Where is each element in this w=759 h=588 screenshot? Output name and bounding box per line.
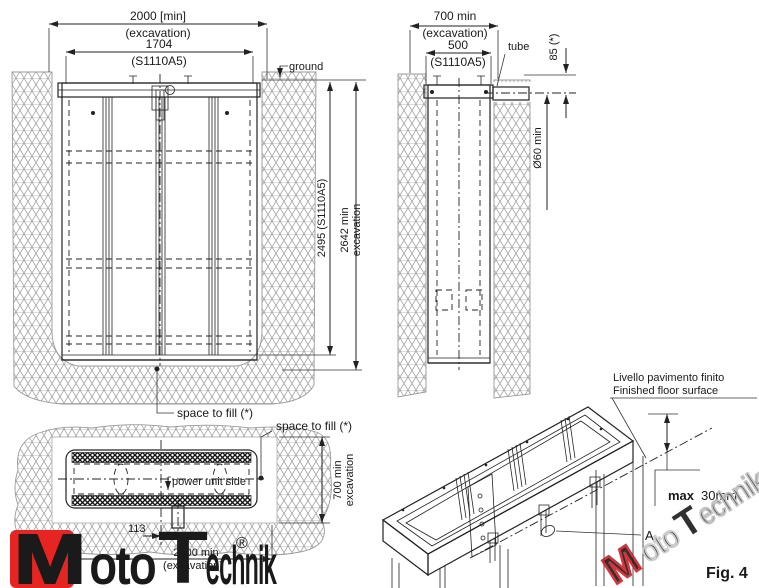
side-soil-left [398,74,426,397]
front-posts [103,97,218,355]
rim-rivets [402,418,603,512]
top-dim-700-line2: excavation [344,454,356,507]
side-dim-60-label: Ø60 min [532,127,544,169]
top-space-to-fill-label: space to fill (*) [276,419,352,433]
logo-registered-mark: ® [236,535,248,552]
front-dim-2495-label: 2495 (S1110A5) [316,179,328,257]
front-view: 2000 [min] (excavation) 1704 (S1110A5) g… [12,9,366,420]
top-dim-700-line1: 700 min [332,460,344,499]
logo-letter-t: T [158,516,208,588]
front-dim-2000-label: 2000 [min] [130,9,186,23]
front-dim-2642-line1: 2642 min [339,207,351,252]
front-soil-hatch [12,72,316,404]
drawing-canvas: 2000 [min] (excavation) 1704 (S1110A5) g… [0,0,759,588]
front-dim-1704-label: 1704 [146,37,173,51]
logo-oto: oto [90,537,156,588]
iso-floor-label-it: Livello pavimento finito [613,372,724,384]
top-power-unit-label: power unit side [172,476,246,488]
logo-letter-m: M [14,520,86,588]
side-soil-right [494,80,530,398]
side-dim-85-label: 85 (*) [548,34,560,61]
side-dim-500-label: 500 [448,38,468,52]
figure-number: Fig. 4 [706,565,748,582]
iso-floor-label-en: Finished floor surface [613,385,718,397]
side-dim-700-label: 700 min [434,9,477,23]
front-space-to-fill-label: space to fill (*) [177,406,253,420]
side-tube-label: tube [508,41,529,53]
front-ground-label: ground [289,61,323,73]
side-dim-500-sub: (S1110A5) [430,55,486,69]
technical-drawing-page: 2000 [min] (excavation) 1704 (S1110A5) g… [0,0,759,588]
side-view: tube 700 min (excavation) 500 (S1110A5) … [398,9,576,398]
top-dim-113-label: 113 [128,523,146,535]
iso-max-label: max [668,488,695,503]
front-dim-2642-line2: excavation [351,204,363,257]
iso-view: A Livello pavimento finito Finished floo… [383,372,757,588]
front-dim-1704-sub: (S1110A5) [131,54,187,68]
